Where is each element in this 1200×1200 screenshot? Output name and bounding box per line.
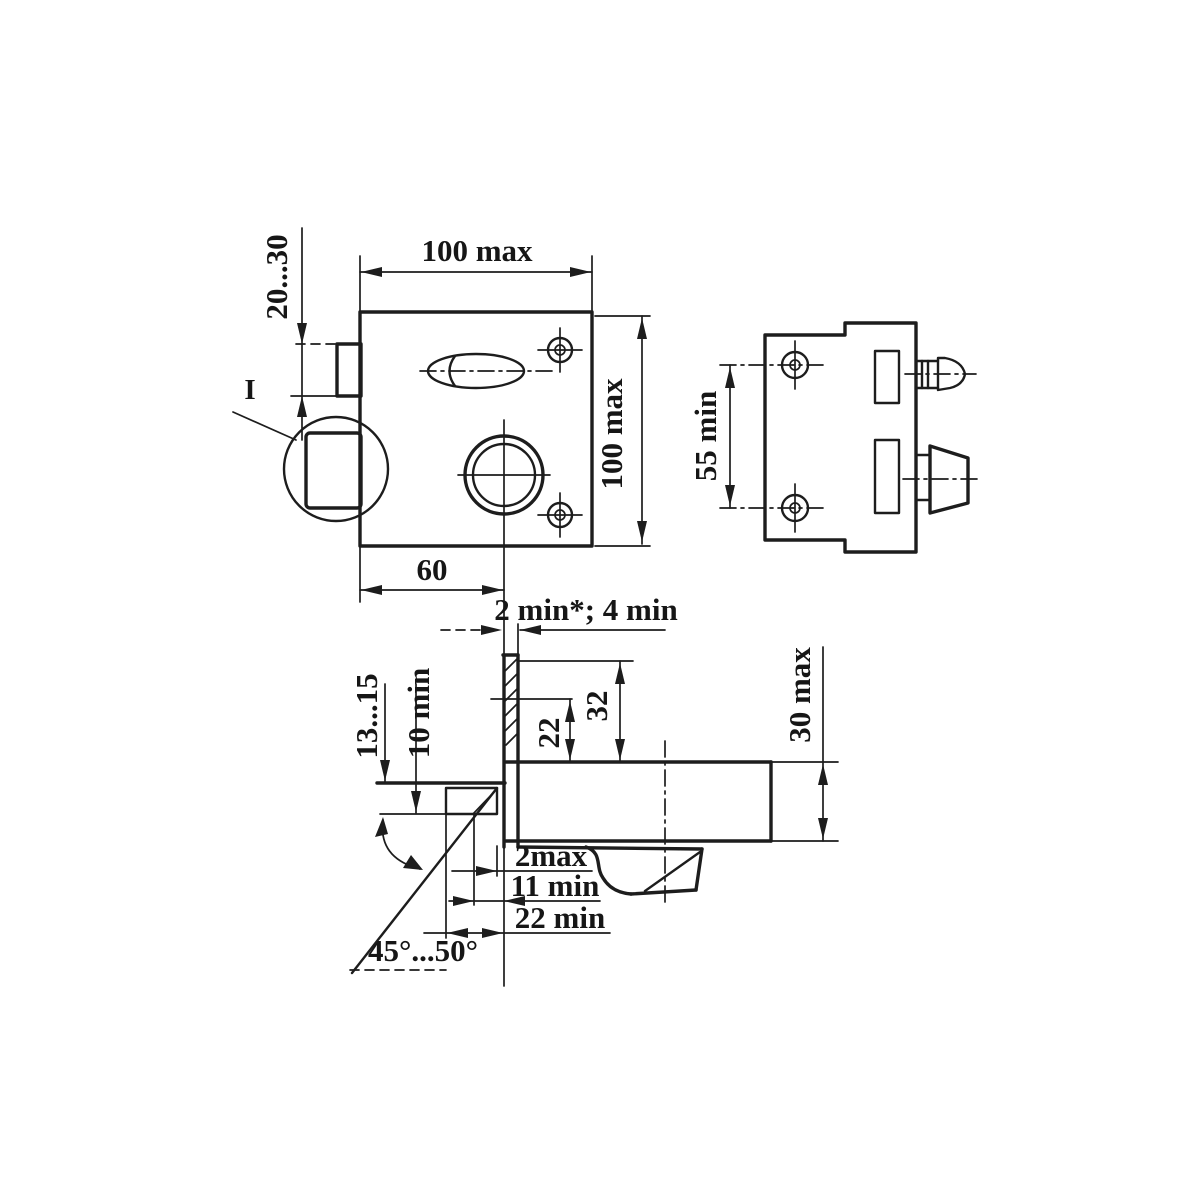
dim-keyhole-offset: 22 [531,699,575,762]
arrowhead-arc-bottom [403,855,423,870]
turn-knob-slot [420,354,552,388]
arrowhead-up [565,701,575,722]
arrowhead-down [615,739,625,760]
dim-label-keyhole-offset: 22 [531,718,566,749]
detail-mark-label: I [244,374,255,406]
detail-leader-line [233,412,296,440]
arrowhead-arc-top [375,817,388,837]
arrowhead-right [453,896,474,906]
arrowhead-up [818,764,828,785]
arrowhead-down [637,521,647,542]
front-view [233,256,650,602]
dim-plate-thickness: 2 min*; 4 min [441,592,678,635]
arrowhead-up [637,318,647,339]
dim-label-backset: 60 [417,552,448,587]
arrowhead-down [411,791,421,812]
arrowhead-down [297,323,307,344]
hatch-line [504,688,518,702]
strike-recess [446,788,497,814]
slot-lower [875,440,899,513]
arrowhead-right [570,267,591,277]
dim-label-case-depth: 30 max [782,647,817,743]
hatch-line [504,718,518,732]
hatch-line [504,703,518,717]
dim-label-front-width: 100 max [421,233,533,268]
detail-callout: I [244,374,255,406]
dim-label-slot-offset: 32 [579,691,614,722]
dim-label-edge-depth-range: 13...15 [349,673,384,758]
arrowhead-right [476,866,497,876]
dim-hole-spacing: 55 min [688,365,735,508]
hatch-line [504,658,518,672]
screw-hole-bottom [538,493,582,537]
dim-edge-depth-min: 10 min [401,668,436,813]
slot-upper [875,351,899,403]
screw-hole-top [538,328,582,372]
dim-backset: 60 [360,552,504,595]
arrowhead-left [361,267,382,277]
latch-bottom-line [631,890,696,894]
dim-follower-offset: 20...30 [259,228,340,440]
side-screw-hole-top [720,341,824,389]
dim-label-bevel-angle: 45°...50° [368,933,478,968]
arrowhead-down [565,739,575,760]
dim-front-width: 100 max [360,233,592,277]
dim-label-hole-spacing: 55 min [688,391,723,481]
hatch-line [504,673,518,687]
arrowhead-left [361,585,382,595]
arrowhead-down [725,485,735,506]
arrowhead-up [725,367,735,388]
latch-bevel-diagonal [645,852,700,891]
hatch-line [506,733,518,745]
dim-bevel-angle: 45°...50° [368,817,478,968]
arrowhead-up [297,396,307,417]
side-view [720,323,982,552]
dim-edge-depth-range: 13...15 [349,673,390,782]
door-edge-strip [503,624,518,847]
dim-label-edge-depth-min: 10 min [401,668,436,758]
dim-label-plate-thickness: 2 min*; 4 min [494,592,677,627]
follower-housing [337,344,361,396]
dim-label-front-height: 100 max [594,378,629,490]
arrowhead-down [380,760,390,781]
recess-diagonal [473,789,497,814]
dim-front-height: 100 max [594,316,647,544]
side-screw-hole-bottom [720,484,824,532]
dim-label-strike-depth: 22 min [515,900,605,935]
drawing-canvas: 100 max 100 max 20...30 I 60 [0,0,1200,1200]
deadbolt-collar [916,455,930,500]
dimensions: 100 max 100 max 20...30 I 60 [244,228,828,968]
arrowhead-down [818,818,828,839]
dim-slot-offset: 32 [579,661,625,762]
dim-case-depth: 30 max [782,647,828,841]
dim-label-latch-engagement: 11 min [511,868,600,903]
engineering-drawing: 100 max 100 max 20...30 I 60 [0,0,1200,1200]
keyhole-square [306,433,361,508]
arrowhead-up [615,663,625,684]
lock-case-section [506,762,838,841]
arrowhead-right [482,928,503,938]
dim-label-follower-offset: 20...30 [259,234,294,319]
section-hatching [504,658,518,745]
